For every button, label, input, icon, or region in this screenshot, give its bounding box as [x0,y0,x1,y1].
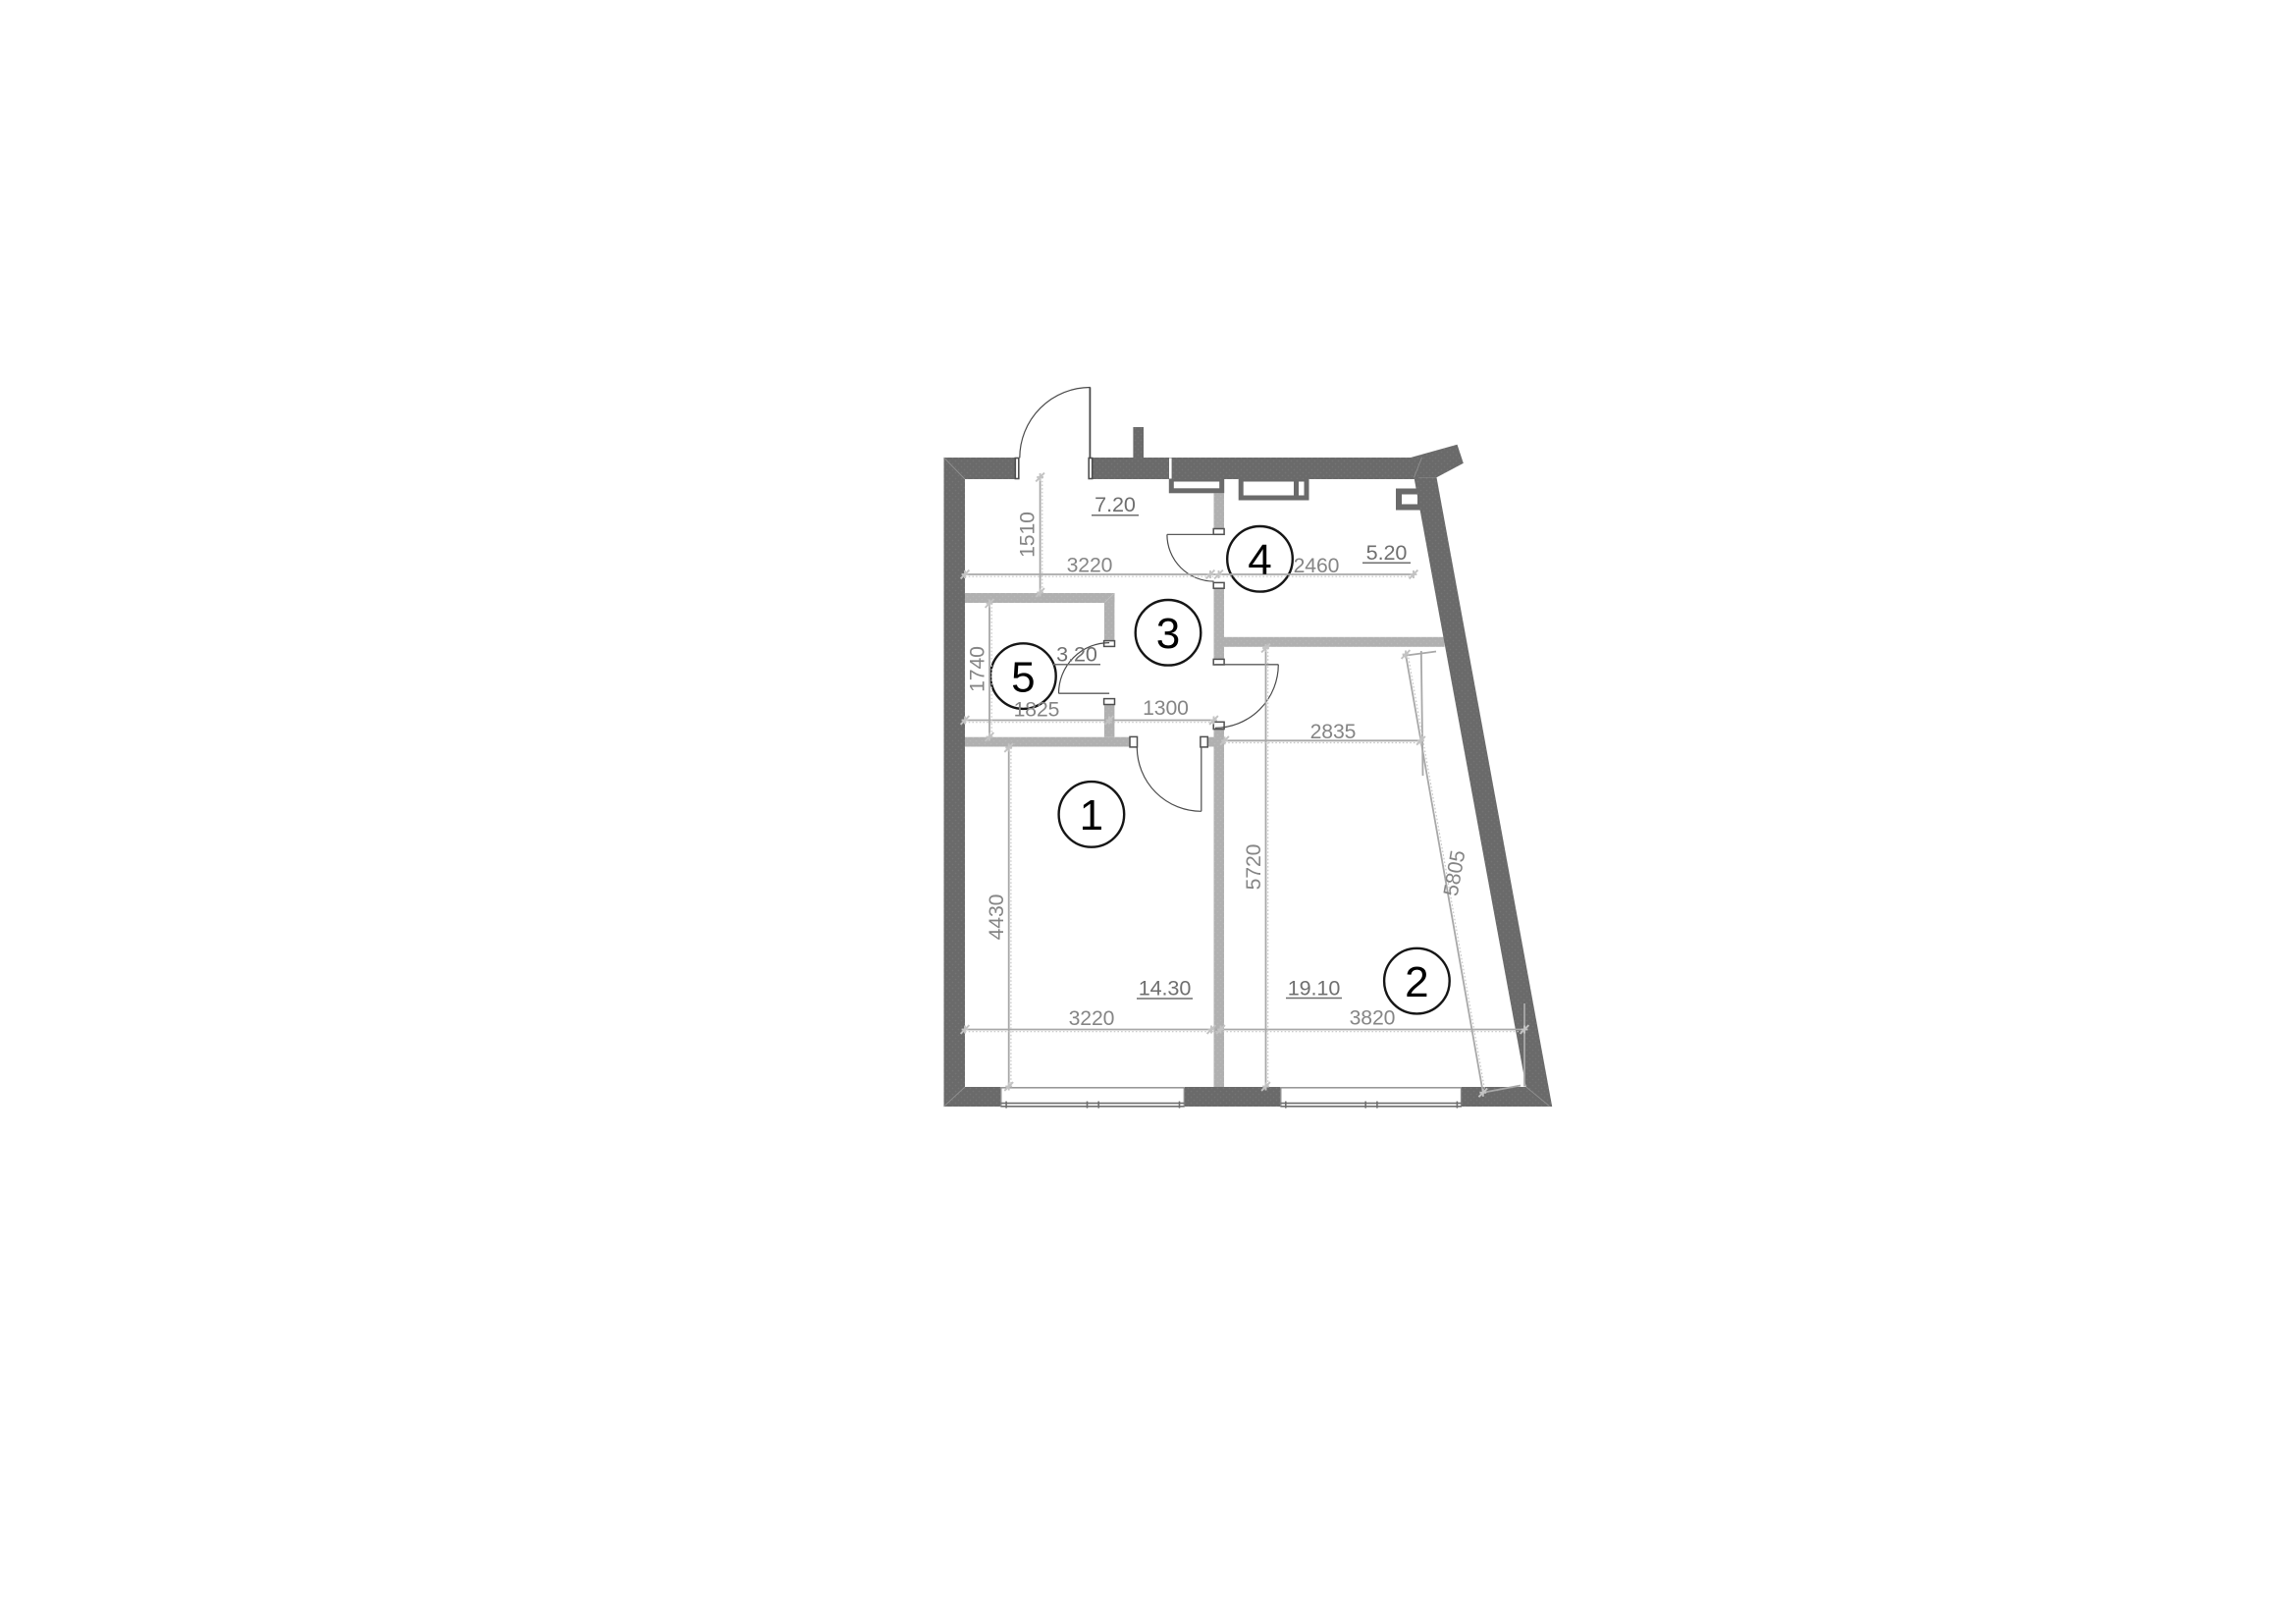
svg-text:1740: 1740 [967,646,989,692]
svg-text:19.10: 19.10 [1288,976,1341,1001]
svg-text:3.20: 3.20 [1056,642,1097,667]
svg-text:2835: 2835 [1310,721,1357,743]
svg-text:7.20: 7.20 [1095,492,1136,516]
svg-text:1825: 1825 [1014,699,1060,722]
svg-text:2460: 2460 [1294,555,1340,577]
svg-text:4: 4 [1248,536,1271,584]
svg-text:2: 2 [1405,958,1428,1006]
svg-text:14.30: 14.30 [1139,976,1192,1001]
svg-text:3: 3 [1156,610,1180,658]
svg-text:1510: 1510 [1017,512,1040,558]
svg-text:3220: 3220 [1067,555,1113,577]
svg-text:5: 5 [1011,653,1035,701]
svg-text:1: 1 [1080,791,1103,839]
svg-text:1300: 1300 [1143,697,1189,720]
svg-text:3220: 3220 [1069,1007,1115,1030]
svg-text:4430: 4430 [986,894,1008,941]
svg-text:5720: 5720 [1243,844,1265,891]
svg-text:3820: 3820 [1350,1007,1396,1030]
svg-text:5.20: 5.20 [1366,540,1408,565]
